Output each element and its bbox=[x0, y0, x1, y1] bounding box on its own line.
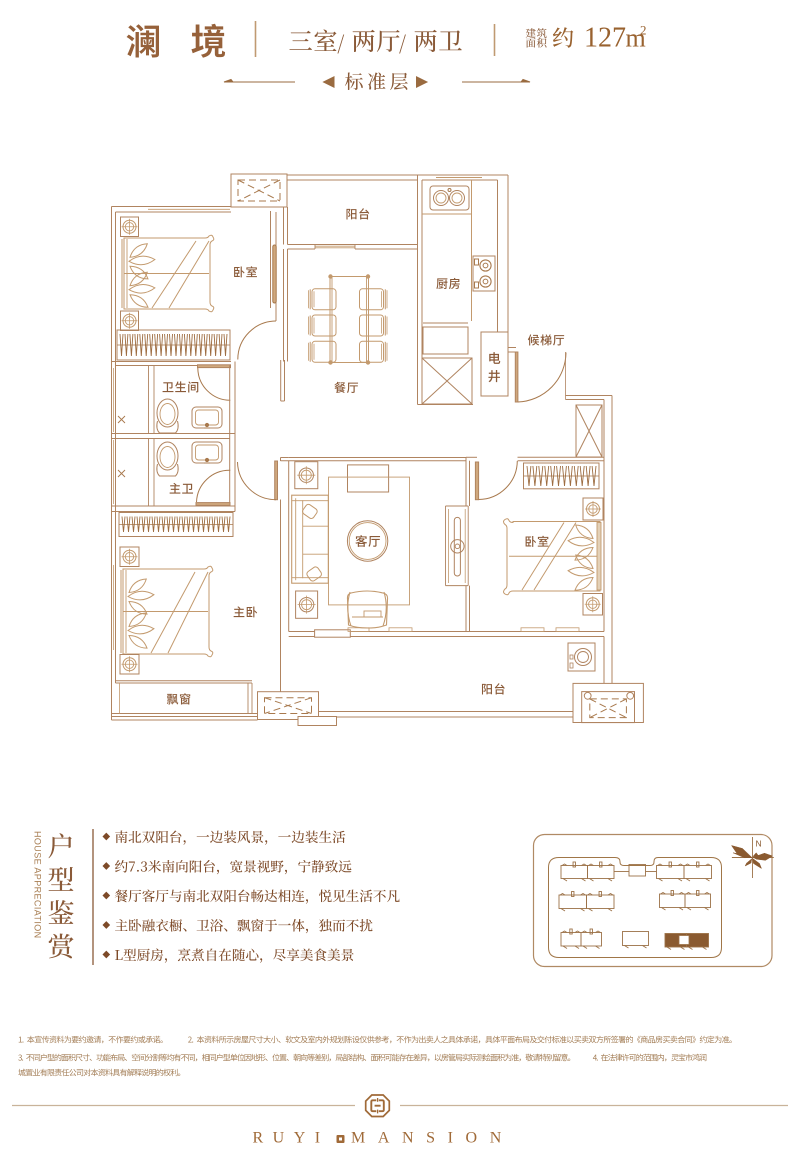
svg-text:HOUSE APPRECIATION: HOUSE APPRECIATION bbox=[33, 831, 43, 939]
svg-text:2: 2 bbox=[640, 23, 647, 38]
svg-text:RUYI: RUYI bbox=[253, 1130, 330, 1147]
svg-text:127: 127 bbox=[584, 23, 626, 54]
svg-text:MANSION: MANSION bbox=[351, 1130, 514, 1147]
svg-text:N: N bbox=[756, 839, 762, 849]
